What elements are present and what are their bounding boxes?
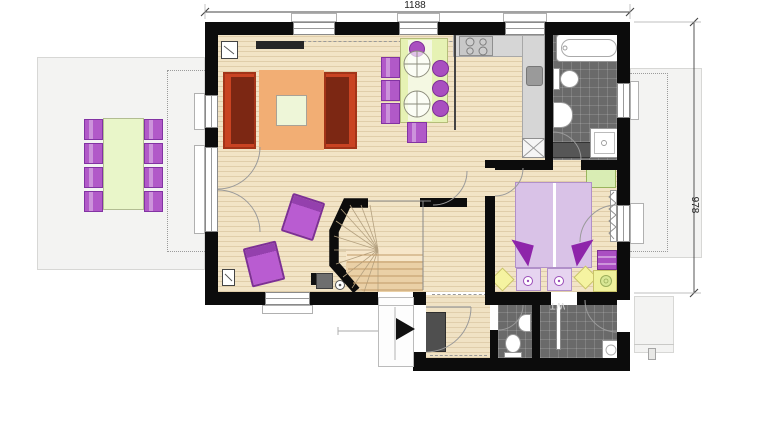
wall — [485, 196, 495, 292]
door-sill — [194, 145, 205, 234]
radiator — [610, 190, 617, 242]
window-sill — [262, 305, 313, 314]
hall-wardrobe — [551, 142, 595, 158]
toilet — [505, 334, 521, 353]
kitchen-sink — [526, 66, 543, 86]
chair — [407, 122, 427, 143]
threshold-dash — [432, 294, 487, 296]
window-sill — [397, 13, 440, 22]
window — [265, 292, 310, 305]
bathtub — [556, 34, 622, 62]
entrance-arrow-icon — [396, 318, 415, 340]
wall — [490, 298, 498, 305]
wall — [420, 198, 467, 207]
chair — [84, 191, 103, 212]
kitchen-partition — [454, 35, 456, 130]
terrace-table — [103, 118, 144, 210]
dresser — [597, 250, 617, 270]
sofa — [324, 72, 357, 149]
wall — [581, 160, 630, 170]
shaft-box — [522, 138, 545, 158]
threshold-dash — [430, 355, 487, 357]
chair — [144, 143, 163, 164]
chair — [381, 57, 400, 78]
chimney-icon — [335, 280, 345, 290]
wall — [205, 128, 218, 147]
bathtub-inner — [561, 39, 617, 57]
distribution-box-icon — [221, 41, 238, 59]
sofa-cushions — [326, 77, 349, 144]
window — [293, 22, 335, 35]
stool — [432, 100, 449, 117]
window — [505, 22, 545, 35]
wall — [532, 298, 540, 358]
chair — [84, 119, 103, 140]
wall — [413, 358, 630, 371]
shower-inner — [594, 132, 615, 154]
stool — [432, 60, 449, 77]
porch-step-line — [634, 344, 674, 345]
stool — [432, 80, 449, 97]
wall — [545, 35, 553, 160]
dimension-label-top: 1188 — [380, 0, 450, 11]
window-sill — [503, 13, 547, 22]
wall — [205, 22, 218, 95]
coffee-table — [276, 95, 307, 126]
window — [399, 22, 438, 35]
wall — [490, 330, 498, 358]
wall — [413, 292, 426, 305]
window — [617, 83, 630, 118]
entrance-step-line — [378, 305, 414, 306]
sofa — [223, 72, 256, 149]
desk — [593, 270, 617, 292]
window-sill — [630, 81, 639, 120]
porch-detail — [648, 348, 656, 360]
wall — [205, 292, 265, 305]
door-sill — [630, 203, 644, 244]
stool — [409, 41, 425, 57]
nightstand — [547, 268, 572, 291]
wall — [205, 232, 218, 292]
chair — [84, 167, 103, 188]
porch-door-gap — [617, 300, 630, 332]
chair — [144, 191, 163, 212]
wall — [495, 160, 553, 170]
sofa-cushions — [231, 77, 254, 144]
chair — [381, 80, 400, 101]
chair — [381, 103, 400, 124]
chair — [84, 143, 103, 164]
balcony-door — [617, 205, 630, 242]
stove — [459, 36, 493, 56]
nightstand — [516, 268, 541, 291]
kitchen-counter-side — [522, 35, 545, 140]
wood-stove — [316, 273, 333, 289]
distribution-box-icon — [222, 269, 235, 286]
wall — [617, 35, 630, 83]
window — [205, 95, 218, 128]
toilet — [560, 70, 579, 88]
chair — [144, 119, 163, 140]
utility-room-label: WT — [544, 300, 570, 312]
wall — [310, 292, 378, 305]
window-sill — [291, 13, 337, 22]
wall — [485, 160, 495, 168]
washbasin — [518, 314, 531, 332]
floor-plan: 1188 978 WT — [0, 0, 768, 422]
window-sill — [194, 93, 205, 130]
toilet-tank — [553, 68, 560, 90]
wc-door-gap — [490, 305, 498, 330]
shower — [590, 128, 619, 158]
dimension-label-right: 978 — [686, 185, 700, 225]
chair — [144, 167, 163, 188]
terrace-door — [205, 147, 218, 232]
fireplace — [256, 41, 304, 49]
